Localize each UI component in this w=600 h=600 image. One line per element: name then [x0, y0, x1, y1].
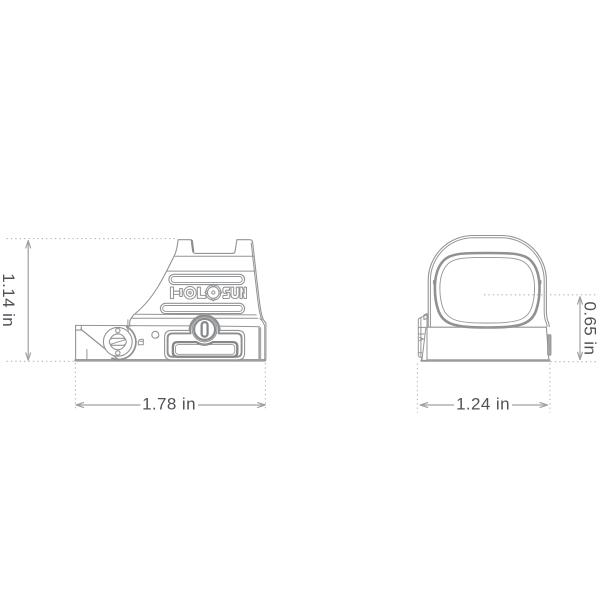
svg-text:1.78 in: 1.78 in: [142, 394, 196, 413]
svg-text:0.65 in: 0.65 in: [580, 301, 599, 355]
svg-text:1.14 in: 1.14 in: [0, 273, 18, 327]
svg-text:1.24 in: 1.24 in: [456, 394, 510, 413]
